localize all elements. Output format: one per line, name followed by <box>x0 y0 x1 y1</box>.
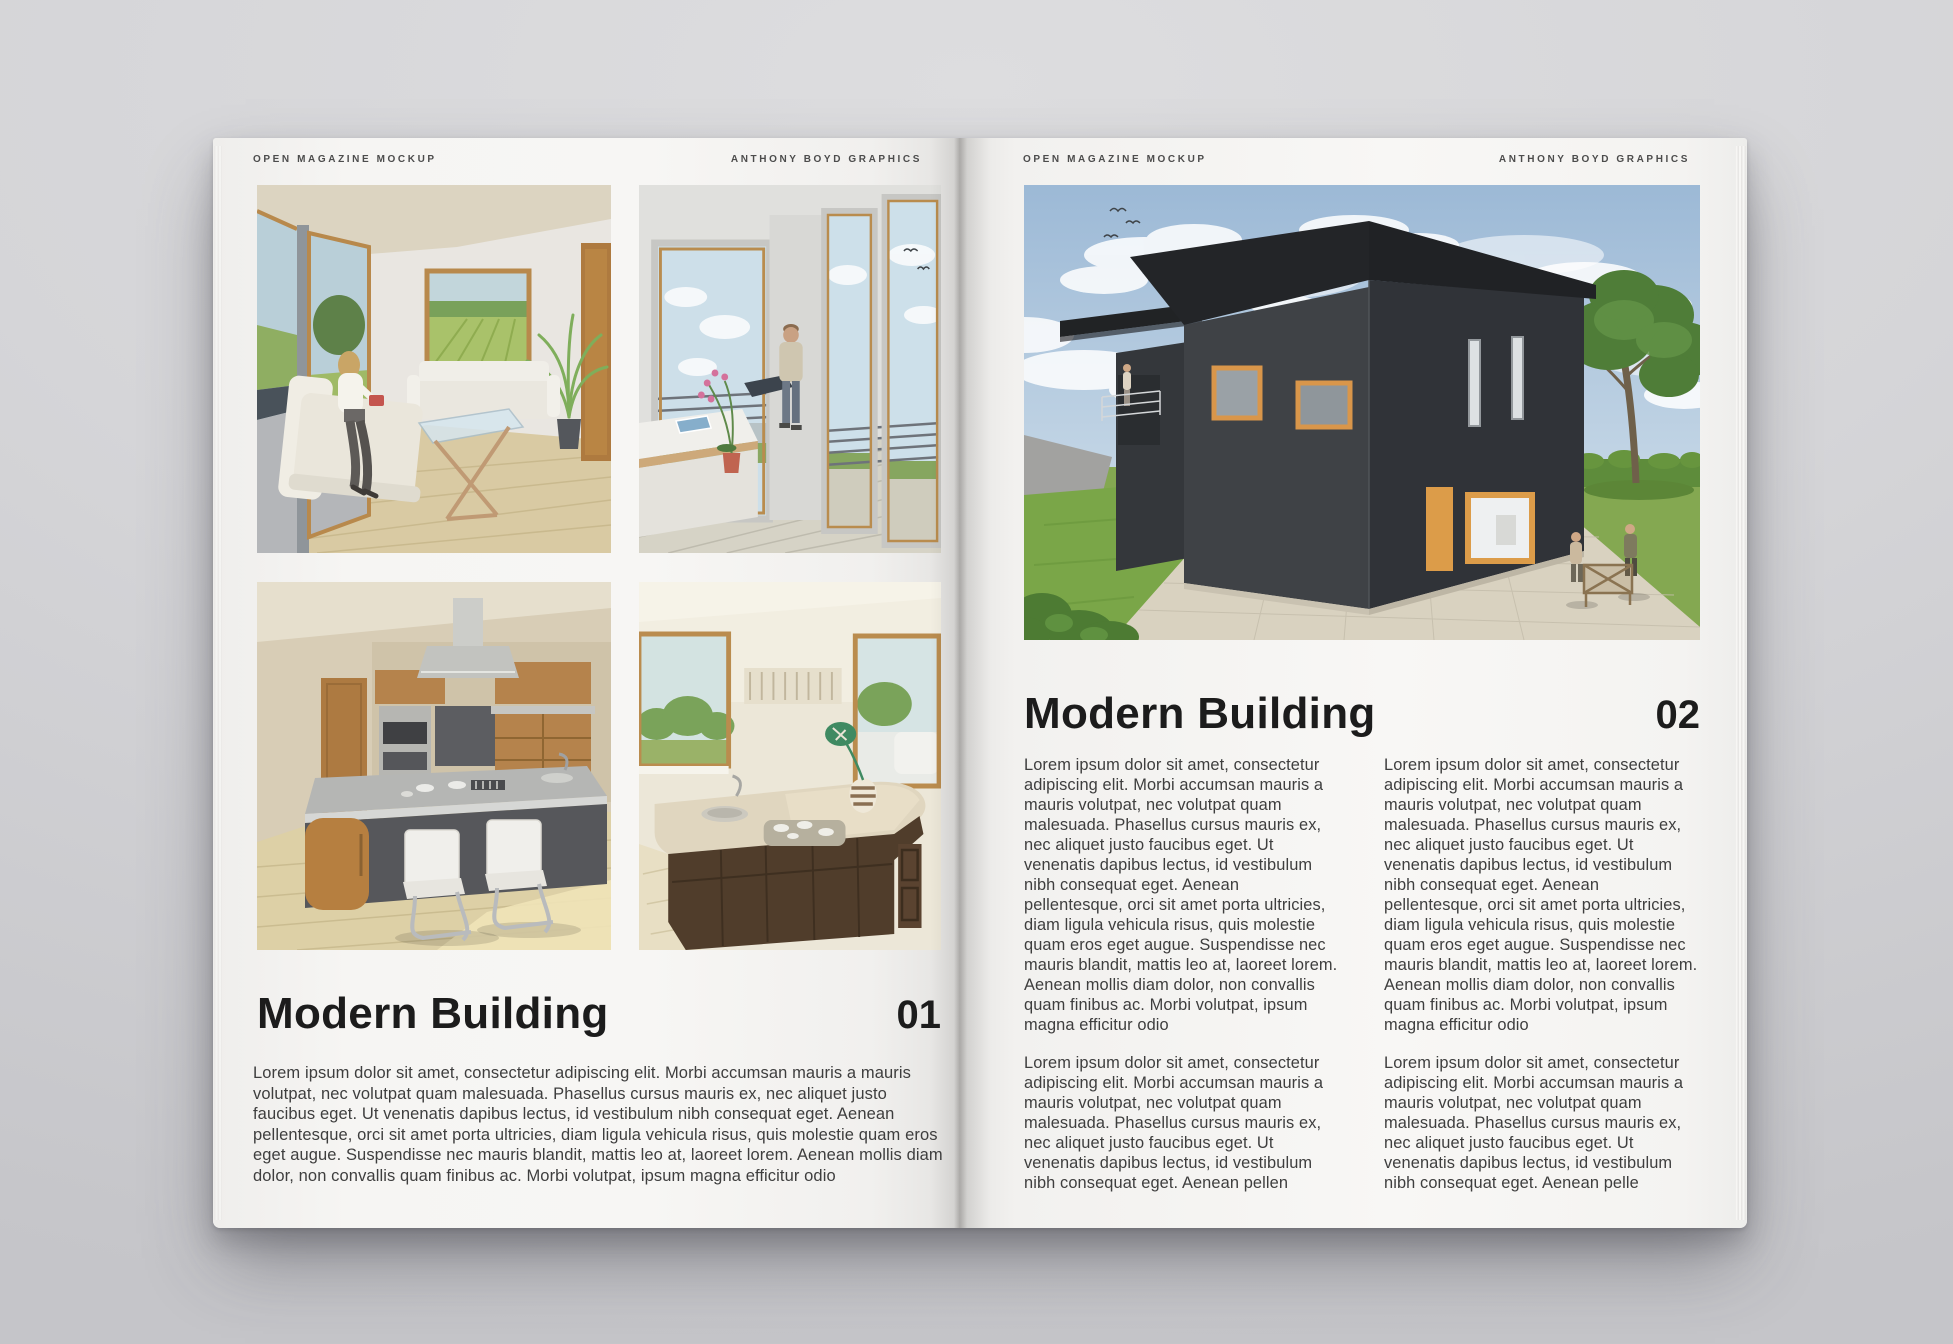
kitchen-counter-illustration <box>639 582 941 950</box>
article-title: Modern Building <box>257 990 609 1038</box>
right-running-head: OPEN MAGAZINE MOCKUP ANTHONY BOYD GRAPHI… <box>960 154 1747 165</box>
column-1: Lorem ipsum dolor sit amet, consectetur … <box>1024 755 1340 1193</box>
balcony-illustration <box>639 185 941 553</box>
right-article-heading-row: Modern Building 02 <box>1024 690 1700 738</box>
running-head-left: OPEN MAGAZINE MOCKUP <box>253 154 437 165</box>
article-number: 01 <box>897 993 942 1038</box>
column-2: Lorem ipsum dolor sit amet, consectetur … <box>1384 755 1700 1193</box>
desk-background: OPEN MAGAZINE MOCKUP ANTHONY BOYD GRAPHI… <box>0 0 1953 1344</box>
left-running-head: OPEN MAGAZINE MOCKUP ANTHONY BOYD GRAPHI… <box>213 154 960 165</box>
article-number: 02 <box>1656 693 1701 738</box>
right-page: OPEN MAGAZINE MOCKUP ANTHONY BOYD GRAPHI… <box>960 138 1747 1228</box>
column-1-paragraph-2: Lorem ipsum dolor sit amet, consectetur … <box>1024 1053 1340 1193</box>
article-title: Modern Building <box>1024 690 1376 738</box>
photo-grid <box>257 185 941 950</box>
article-columns: Lorem ipsum dolor sit amet, consectetur … <box>1024 755 1700 1193</box>
column-2-paragraph-2: Lorem ipsum dolor sit amet, consectetur … <box>1384 1053 1700 1193</box>
article-body: Lorem ipsum dolor sit amet, consectetur … <box>253 1063 953 1187</box>
living-room-illustration <box>257 185 611 553</box>
modern-house-photo <box>1024 185 1700 640</box>
left-page: OPEN MAGAZINE MOCKUP ANTHONY BOYD GRAPHI… <box>213 138 960 1228</box>
kitchen-island-illustration <box>257 582 611 950</box>
modern-house-illustration <box>1024 185 1700 640</box>
balcony-photo <box>639 185 941 553</box>
left-article-heading-row: Modern Building 01 <box>257 990 941 1038</box>
living-room-photo <box>257 185 611 553</box>
kitchen-counter-photo <box>639 582 941 950</box>
magazine-spread: OPEN MAGAZINE MOCKUP ANTHONY BOYD GRAPHI… <box>213 138 1747 1228</box>
column-2-paragraph-1: Lorem ipsum dolor sit amet, consectetur … <box>1384 755 1700 1035</box>
running-head-right: ANTHONY BOYD GRAPHICS <box>1499 154 1690 165</box>
running-head-right: ANTHONY BOYD GRAPHICS <box>731 154 922 165</box>
column-1-paragraph-1: Lorem ipsum dolor sit amet, consectetur … <box>1024 755 1340 1035</box>
kitchen-island-photo <box>257 582 611 950</box>
running-head-left: OPEN MAGAZINE MOCKUP <box>1023 154 1207 165</box>
